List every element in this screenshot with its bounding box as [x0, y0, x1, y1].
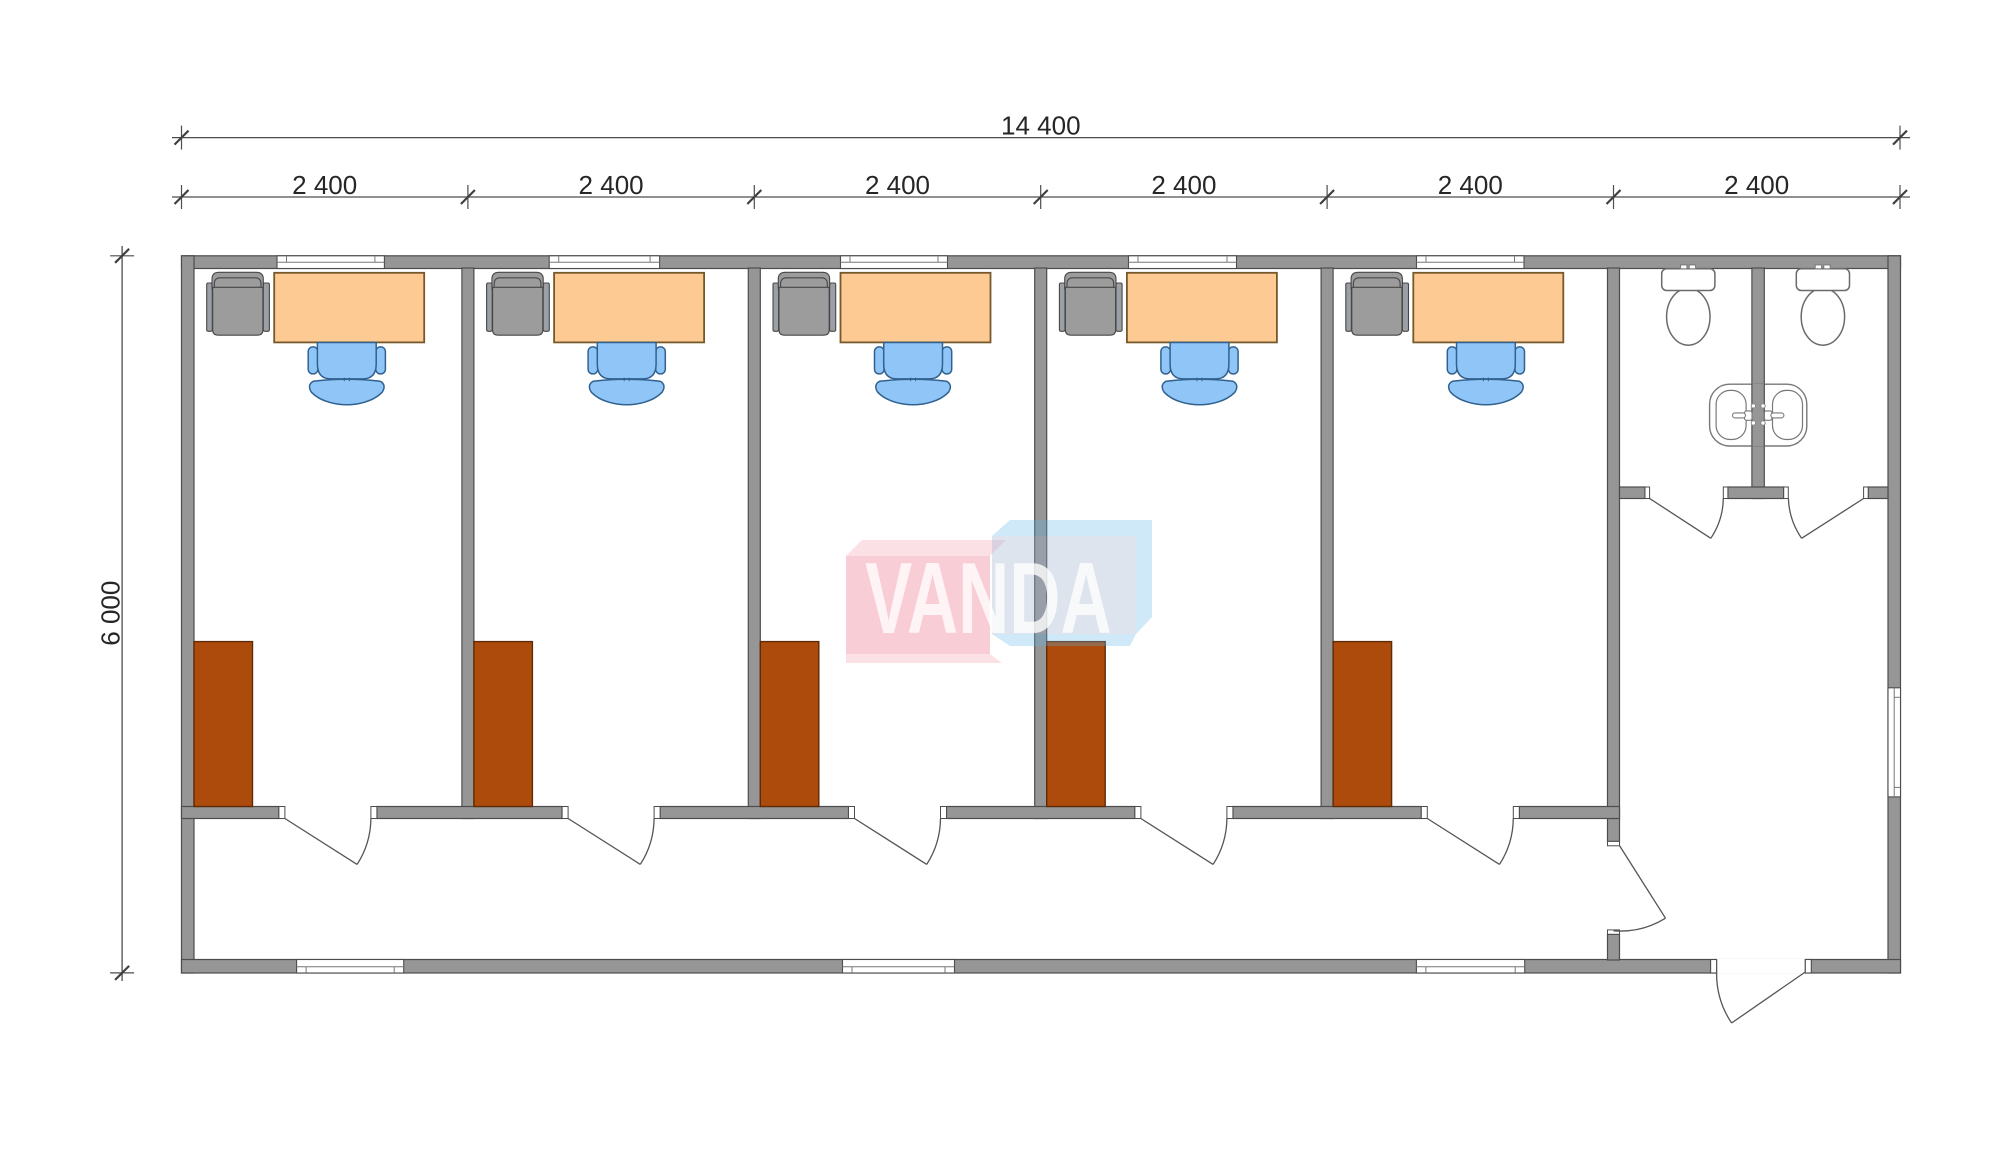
- svg-text:2 400: 2 400: [579, 170, 644, 200]
- svg-text:14 400: 14 400: [1001, 111, 1081, 141]
- svg-text:2 400: 2 400: [865, 170, 930, 200]
- svg-text:VANDA: VANDA: [865, 543, 1112, 655]
- svg-text:2 400: 2 400: [1724, 170, 1789, 200]
- svg-text:6 000: 6 000: [96, 581, 126, 646]
- svg-text:2 400: 2 400: [1151, 170, 1216, 200]
- svg-text:2 400: 2 400: [1438, 170, 1503, 200]
- svg-text:2 400: 2 400: [292, 170, 357, 200]
